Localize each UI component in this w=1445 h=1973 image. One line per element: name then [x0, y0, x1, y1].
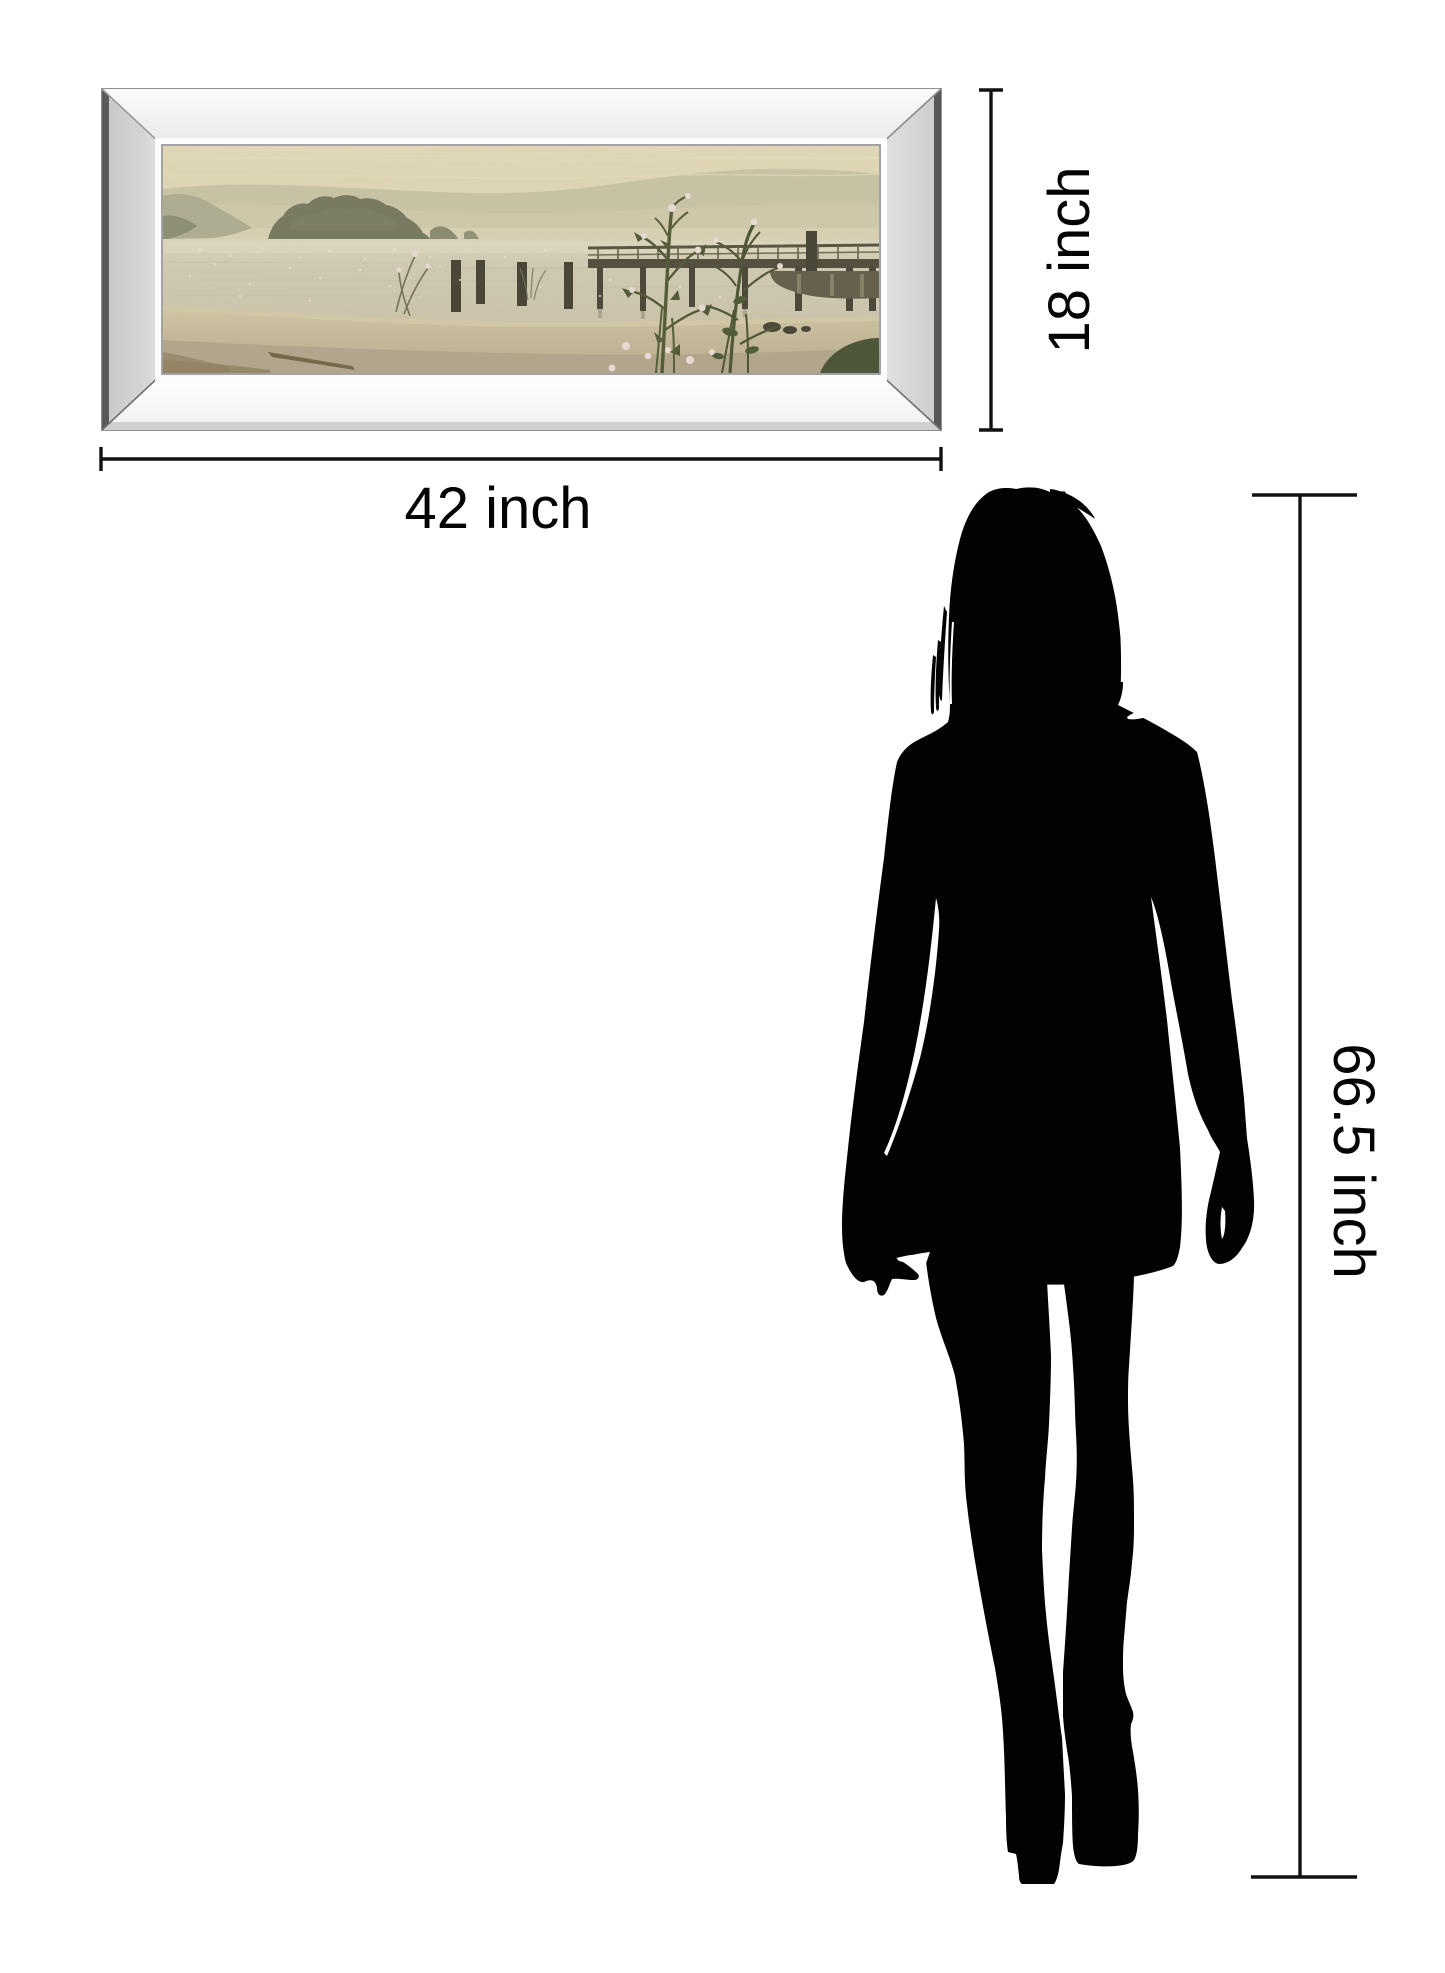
svg-text:42 inch: 42 inch: [404, 476, 591, 541]
svg-text:66.5 inch: 66.5 inch: [1321, 1043, 1386, 1278]
svg-text:18 inch: 18 inch: [1037, 166, 1102, 353]
